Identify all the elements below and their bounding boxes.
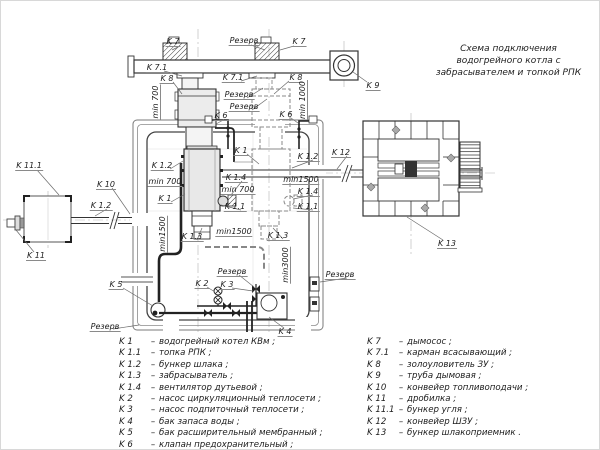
legend-row: K 6–клапан предохранительный ; xyxy=(119,440,364,450)
legend-row: K 7.1–карман всасывающий ; xyxy=(367,348,592,359)
legend-row: K 1.1–топка РПК ; xyxy=(119,348,364,359)
diagram-label: K 1.2 xyxy=(90,201,113,211)
legend-code: K 2 xyxy=(119,394,147,404)
legend-description: бак запаса воды ; xyxy=(159,417,364,427)
boiler-K1 xyxy=(181,146,223,211)
legend-row: K 4–бак запаса воды ; xyxy=(119,417,364,428)
legend-code: K 1.1 xyxy=(119,348,147,358)
legend-code: K 7 xyxy=(367,337,395,347)
legend-row: K 8–золоуловитель ЗУ ; xyxy=(367,360,592,371)
diagram-label: K 1.4 xyxy=(297,187,320,197)
legend-row: K 11–дробилка ; xyxy=(367,394,592,405)
legend-row: K 7–дымосос ; xyxy=(367,337,592,348)
diagram-label: K 6 xyxy=(214,111,229,121)
legend-description: клапан предохранительный ; xyxy=(159,440,364,450)
diagram-label: Резерв xyxy=(229,102,260,112)
diagram-label: K 1.2 xyxy=(297,152,320,162)
legend-code: K 9 xyxy=(367,371,395,381)
legend-separator: – xyxy=(395,394,407,404)
diagram-label: min 700 xyxy=(221,185,256,195)
legend-code: K 1.3 xyxy=(119,371,147,381)
legend-separator: – xyxy=(395,383,407,393)
legend-row: K 10–конвейер топливоподачи ; xyxy=(367,383,592,394)
chimney-K9 xyxy=(330,51,358,80)
legend-description: конвейер ШЗУ ; xyxy=(407,417,592,427)
coal-bunker-K111 xyxy=(24,196,71,242)
drawing-title: Схема подключенияводогрейного котла сзаб… xyxy=(426,43,591,79)
diagram-label: K 12 xyxy=(331,148,351,158)
crusher-K11 xyxy=(7,216,24,230)
drawing-title-line: Схема подключения xyxy=(426,43,591,55)
legend-code: K 12 xyxy=(367,417,395,427)
legend-code: K 8 xyxy=(367,360,395,370)
legend-row: K 3–насос подпиточный теплосети ; xyxy=(119,405,364,416)
diagram-label: Резерв xyxy=(90,322,121,332)
drawing-title-line: забрасывателем и топкой РПК xyxy=(426,67,591,79)
diagram-label: K 13 xyxy=(437,239,457,249)
diagram-label: Резерв xyxy=(325,270,356,280)
diagram-label: Резерв xyxy=(224,90,255,100)
diagram-label: K 11.1 xyxy=(15,161,43,171)
legend-row: K 12–конвейер ШЗУ ; xyxy=(367,417,592,428)
legend-description: бак расширительный мембранный ; xyxy=(159,428,364,438)
suction-pocket-K71-right xyxy=(249,73,275,89)
diagram-label: K 1.2 xyxy=(151,161,174,171)
diagram-label: min 1000 xyxy=(298,80,308,120)
diagram-label: K 7.1 xyxy=(222,73,245,83)
legend-code: K 11 xyxy=(367,394,395,404)
diagram-label: K 1.3 xyxy=(181,232,204,242)
diagram-label: K 8 xyxy=(160,74,175,84)
reserve-wall-units xyxy=(310,277,319,311)
diagram-label: K 1 xyxy=(158,194,173,204)
diagram-label: K 1 xyxy=(234,146,249,156)
legend-code: K 10 xyxy=(367,383,395,393)
diagram-label: K 2 xyxy=(195,279,210,289)
legend-separator: – xyxy=(147,360,159,370)
diagram-label: K 7 xyxy=(292,37,307,47)
legend-code: K 6 xyxy=(119,440,147,450)
diagram-label: Резерв xyxy=(229,36,260,46)
legend-code: K 1.4 xyxy=(119,383,147,393)
legend-separator: – xyxy=(147,337,159,347)
legend-code: K 11.1 xyxy=(367,405,395,415)
legend-description: конвейер топливоподачи ; xyxy=(407,383,592,393)
diagram-label: min3000 xyxy=(281,246,291,283)
legend-description: водогрейный котел КВм ; xyxy=(159,337,364,347)
diagram-label: K 9 xyxy=(366,81,381,91)
diagram-label: K 3 xyxy=(220,280,235,290)
diagram-label: min 700 xyxy=(148,177,183,187)
legend-description: дымосос ; xyxy=(407,337,592,347)
legend-description: бункер шлакоприемник . xyxy=(407,428,592,438)
legend-description: топка РПК ; xyxy=(159,348,364,358)
legend-separator: – xyxy=(395,348,407,358)
legend-separator: – xyxy=(147,394,159,404)
diagram-label: K 10 xyxy=(96,180,116,190)
drawing-title-line: водогрейного котла с xyxy=(426,55,591,67)
diagram-label: K 1.3 xyxy=(267,231,290,241)
legend-separator: – xyxy=(147,348,159,358)
legend-description: бункер шлака ; xyxy=(159,360,364,370)
legend-code: K 4 xyxy=(119,417,147,427)
legend-description: труба дымовая ; xyxy=(407,371,592,381)
legend-row: K 9–труба дымовая ; xyxy=(367,371,592,382)
legend-description: вентилятор дутьевой ; xyxy=(159,383,364,393)
diagram-label: K 1.4 xyxy=(225,173,248,183)
legend-separator: – xyxy=(147,440,159,450)
diagram-label: K 5 xyxy=(109,280,124,290)
legend-code: K 13 xyxy=(367,428,395,438)
legend-row: K 5–бак расширительный мембранный ; xyxy=(119,428,364,439)
legend-description: насос подпиточный теплосети ; xyxy=(159,405,364,415)
expansion-tank-K5 xyxy=(151,303,165,317)
diagram-label: min 700 xyxy=(151,85,161,120)
diagram-label: K 4 xyxy=(278,327,293,337)
legend-code: K 1.2 xyxy=(119,360,147,370)
legend-row: K 1.4–вентилятор дутьевой ; xyxy=(119,383,364,394)
diagram-label: min1500 xyxy=(282,175,319,185)
legend-separator: – xyxy=(147,405,159,415)
diagram-label: K 1.1 xyxy=(224,202,247,212)
legend-separator: – xyxy=(395,360,407,370)
legend-separator: – xyxy=(147,371,159,381)
diagram-label: K 6 xyxy=(279,110,294,120)
legend-description: дробилка ; xyxy=(407,394,592,404)
water-tank-K4 xyxy=(257,293,287,319)
legend-separator: – xyxy=(147,428,159,438)
legend-description: карман всасывающий ; xyxy=(407,348,592,358)
legend-separator: – xyxy=(147,383,159,393)
legend-row: K 1.2–бункер шлака ; xyxy=(119,360,364,371)
legend-code: K 7.1 xyxy=(367,348,395,358)
legend-description: забрасыватель ; xyxy=(159,371,364,381)
legend-column-left: K 1–водогрейный котел КВм ;K 1.1–топка Р… xyxy=(119,337,364,450)
diagram-label: K 7 xyxy=(166,37,181,47)
diagram-label: min1500 xyxy=(158,215,168,252)
fuel-conveyor-K10 xyxy=(71,212,132,229)
legend-code: K 1 xyxy=(119,337,147,347)
drawing-sheet: Схема подключенияводогрейного котла сзаб… xyxy=(0,0,600,450)
boiler-K1-reserve xyxy=(252,149,302,239)
legend-separator: – xyxy=(395,371,407,381)
legend-row: K 13–бункер шлакоприемник . xyxy=(367,428,592,439)
diagram-label: K 11 xyxy=(26,251,46,261)
legend-row: K 2–насос циркуляционный теплосети ; xyxy=(119,394,364,405)
legend-column-right: K 7–дымосос ;K 7.1–карман всасывающий ;K… xyxy=(367,337,592,440)
legend-code: K 3 xyxy=(119,405,147,415)
diagram-label: K 7.1 xyxy=(146,63,169,73)
bunker-ladder xyxy=(460,142,480,188)
legend-separator: – xyxy=(147,417,159,427)
slag-bunker-K13 xyxy=(363,121,482,216)
legend-separator: – xyxy=(395,417,407,427)
legend-row: K 1.3–забрасыватель ; xyxy=(119,371,364,382)
legend-row: K 11.1–бункер угля ; xyxy=(367,405,592,416)
legend-row: K 1–водогрейный котел КВм ; xyxy=(119,337,364,348)
legend-code: K 5 xyxy=(119,428,147,438)
legend-separator: – xyxy=(395,337,407,347)
legend-description: золоуловитель ЗУ ; xyxy=(407,360,592,370)
diagram-label: Резерв xyxy=(217,267,248,277)
legend-description: бункер угля ; xyxy=(407,405,592,415)
diagram-label: min1500 xyxy=(215,227,252,237)
legend-description: насос циркуляционный теплосети ; xyxy=(159,394,364,404)
diagram-label: K 1.1 xyxy=(297,202,320,212)
legend-separator: – xyxy=(395,405,407,415)
legend-separator: – xyxy=(395,428,407,438)
